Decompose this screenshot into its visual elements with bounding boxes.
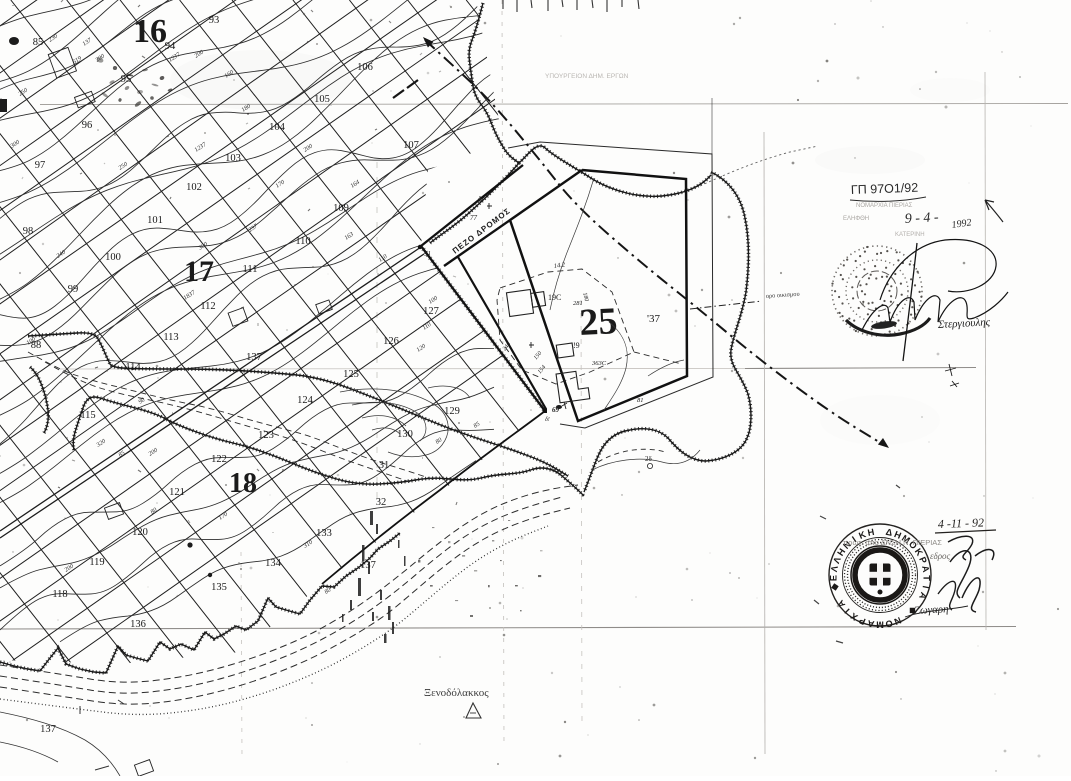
svg-text:99: 99: [68, 284, 79, 295]
svg-text:98: 98: [23, 226, 34, 237]
svg-text:96: 96: [82, 120, 93, 131]
svg-text:32: 32: [376, 497, 387, 508]
svg-text:25: 25: [578, 300, 618, 344]
svg-text:136: 136: [130, 619, 146, 630]
svg-text:88: 88: [31, 340, 42, 351]
svg-text:129: 129: [444, 406, 460, 417]
svg-text:2δ: 2δ: [645, 455, 653, 463]
svg-text:9 - 4 -: 9 - 4 -: [904, 210, 939, 227]
svg-text:ΕΛΗΦΘΗ: ΕΛΗΦΘΗ: [843, 216, 869, 222]
svg-text:135: 135: [211, 582, 227, 593]
svg-text:δ!: δ!: [545, 417, 550, 423]
svg-text:4 -11 - 92: 4 -11 - 92: [938, 515, 985, 531]
svg-text:111: 111: [243, 264, 258, 275]
svg-text:31: 31: [379, 460, 390, 471]
svg-text:18: 18: [229, 468, 257, 499]
svg-text:363C: 363C: [591, 360, 607, 367]
svg-text:91: 91: [424, 250, 431, 258]
svg-text:115: 115: [80, 410, 95, 421]
svg-text:126: 126: [383, 336, 399, 347]
svg-text:Ξενοδόλακκος: Ξενοδόλακκος: [424, 687, 489, 699]
svg-text:137: 137: [246, 352, 262, 363]
svg-text:137: 137: [40, 724, 56, 735]
svg-text:ΚΑΤΕΡΙΝΗ: ΚΑΤΕΡΙΝΗ: [895, 232, 925, 238]
svg-text:106: 106: [357, 62, 373, 73]
svg-text:101: 101: [147, 215, 163, 226]
svg-text:281: 281: [573, 300, 583, 307]
svg-text:85: 85: [33, 37, 44, 48]
svg-text:16: 16: [133, 13, 167, 50]
svg-text:134: 134: [265, 558, 282, 569]
svg-text:122: 122: [211, 454, 227, 465]
svg-text:Ζωγαρη: Ζωγαρη: [914, 603, 949, 617]
svg-text:!9: !9: [573, 341, 580, 350]
svg-text:121: 121: [169, 487, 185, 498]
svg-text:77: 77: [470, 214, 478, 222]
svg-text:103: 103: [225, 153, 241, 164]
svg-text:107: 107: [403, 140, 419, 151]
svg-text:Τ: Τ: [922, 575, 932, 581]
svg-text:110: 110: [295, 236, 310, 247]
svg-text:Μ: Μ: [876, 620, 884, 630]
svg-text:πρωτ. απο ΔΝΣΗ Ν. ΠΙΕΡΙΑΣ: πρωτ. απο ΔΝΣΗ Ν. ΠΙΕΡΙΑΣ: [843, 538, 942, 547]
svg-text:17: 17: [184, 255, 214, 288]
svg-text:113: 113: [163, 332, 178, 343]
svg-text:εδρος: εδρος: [930, 551, 951, 561]
svg-text:109: 109: [333, 203, 349, 214]
svg-text:120: 120: [132, 527, 148, 538]
svg-text:125: 125: [343, 369, 359, 380]
svg-text:118: 118: [52, 589, 67, 600]
svg-text:Ε: Ε: [829, 575, 839, 581]
svg-text:'37: '37: [647, 313, 660, 325]
svg-text:133: 133: [316, 528, 332, 539]
svg-text:93: 93: [209, 15, 220, 26]
svg-text:97: 97: [35, 160, 46, 171]
svg-text:ΝΟΜΑΡΧΙΑ ΠΙΕΡΙΑΣ: ΝΟΜΑΡΧΙΑ ΠΙΕΡΙΑΣ: [856, 203, 913, 209]
svg-text:127: 127: [423, 306, 439, 317]
svg-text:102: 102: [186, 182, 202, 193]
svg-text:124: 124: [297, 395, 314, 406]
svg-text:ΥΠΟΥΡΓΕΙΟΝ ΔΗΜ. ΕΡΓΩΝ: ΥΠΟΥΡΓΕΙΟΝ ΔΗΜ. ΕΡΓΩΝ: [545, 73, 629, 80]
svg-text:119: 119: [89, 557, 104, 568]
svg-text:130: 130: [397, 429, 413, 440]
svg-text:ΓΠ 97Ο1/92: ΓΠ 97Ο1/92: [851, 181, 919, 197]
svg-text:19C: 19C: [548, 293, 561, 302]
svg-text:100: 100: [105, 252, 121, 263]
svg-text:81: 81: [637, 397, 644, 404]
svg-text:112: 112: [200, 301, 215, 312]
